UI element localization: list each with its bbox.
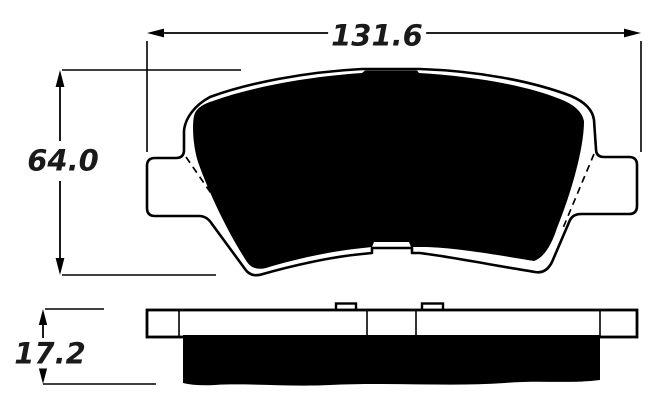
height-dimension-label: 64.0	[24, 147, 102, 176]
width-dimension-label: 131.6	[328, 22, 426, 51]
arrow-left-icon	[147, 29, 164, 38]
friction-material-front	[193, 71, 584, 269]
arrow-down-icon	[56, 258, 65, 275]
side-view-backing-plate	[147, 310, 637, 337]
technical-drawing-canvas: 131.6 64.0 17.2	[0, 0, 672, 414]
brake-pad-diagram	[0, 0, 672, 414]
arrow-up-icon	[56, 70, 65, 87]
friction-material-side	[183, 335, 600, 386]
arrow-up-icon	[39, 309, 47, 325]
thickness-dimension-label: 17.2	[11, 340, 89, 369]
front-view	[147, 69, 637, 275]
side-view	[147, 304, 637, 386]
arrow-right-icon	[624, 29, 641, 38]
